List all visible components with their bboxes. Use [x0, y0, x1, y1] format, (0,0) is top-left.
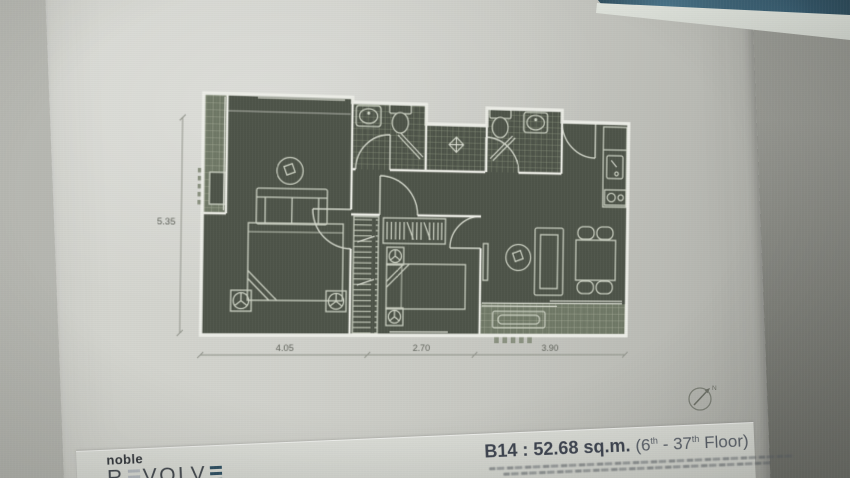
logo-letter-r: R	[107, 467, 126, 478]
logo-e-bars-icon	[210, 466, 223, 478]
sliding-door-icon	[482, 303, 622, 304]
service-niche	[426, 124, 487, 172]
unit-floor-range: (6th - 37th Floor)	[635, 431, 749, 455]
dimension-label: 3.90	[542, 343, 559, 354]
dimension-label: 4.05	[276, 343, 294, 354]
bathroom-1	[352, 102, 427, 170]
closet-icon	[352, 216, 378, 333]
photographed-screen: 4.05 2.70 3.90 5.35 N noble R VOLV	[0, 0, 850, 478]
compass-north-label: N	[712, 385, 717, 392]
unit-code: B14	[484, 440, 518, 461]
compass-icon: N	[681, 378, 725, 418]
logo-letters-volv: VOLV	[142, 463, 207, 478]
brand-logo: noble R VOLV	[106, 449, 226, 478]
dimension-label: 5.35	[157, 216, 176, 227]
dimension-label: 2.70	[413, 343, 431, 354]
floor-plan: 4.05 2.70 3.90 5.35	[148, 76, 652, 378]
bathroom-2	[486, 108, 562, 173]
logo-e-bars-icon	[128, 469, 141, 478]
unit-area: 52.68 sq.m.	[533, 435, 631, 459]
